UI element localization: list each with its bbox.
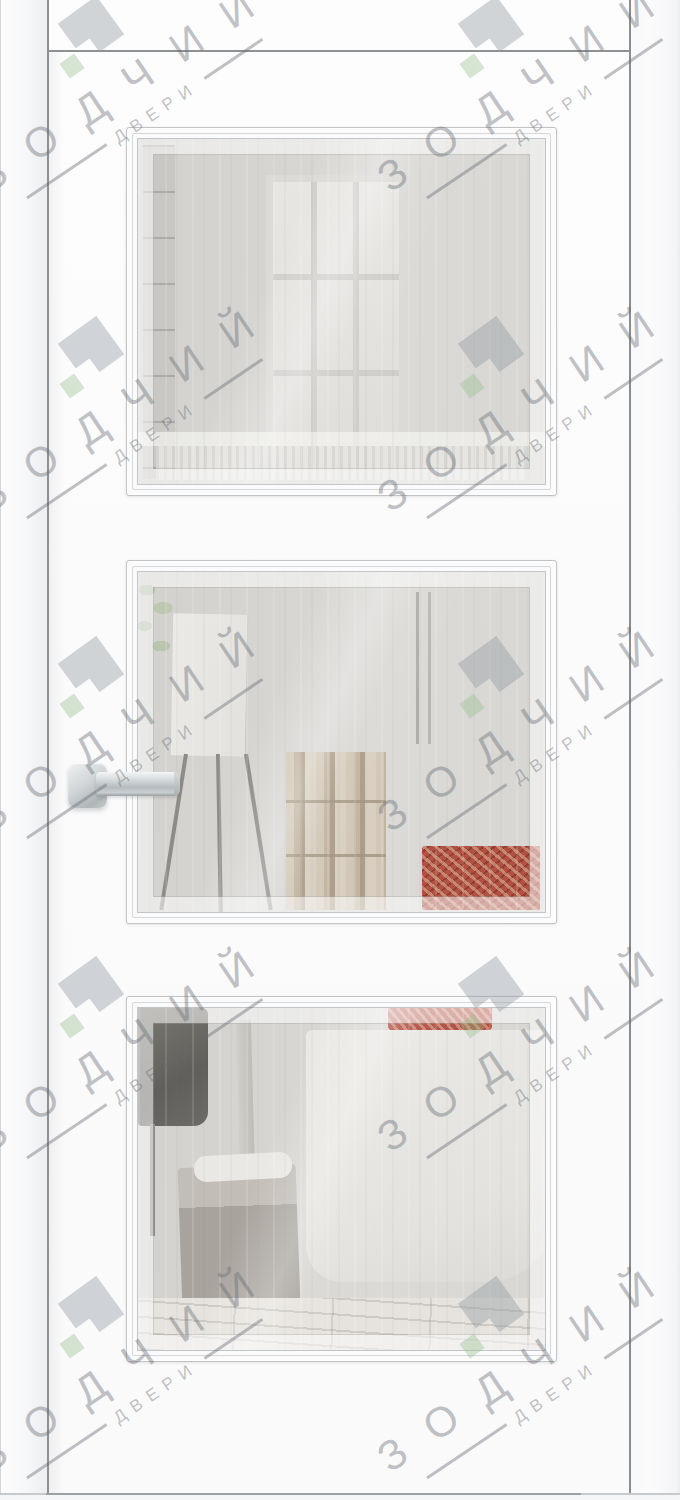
glass-sheen — [138, 1008, 545, 1350]
panel-glass — [137, 138, 546, 485]
glass-panel-bottom — [126, 996, 557, 1362]
door-left-edge — [0, 0, 49, 1494]
glass-sheen — [138, 139, 545, 484]
door-right-edge — [629, 0, 680, 1494]
door-top-edge-line — [49, 50, 629, 52]
glass-panel-middle — [126, 560, 557, 924]
door-product-photo: ЗОДЧИЙ ДВЕРИ ЗОДЧИЙ ДВЕРИ ЗОДЧИЙ ДВЕРИ — [0, 0, 680, 1500]
glass-sheen — [138, 572, 545, 912]
door-bottom-strip — [0, 1495, 680, 1500]
handle-lever — [96, 772, 180, 796]
glass-panel-top — [126, 127, 557, 496]
panel-glass — [137, 1007, 546, 1351]
door-top-edge-face — [49, 0, 629, 50]
panel-glass — [137, 571, 546, 913]
